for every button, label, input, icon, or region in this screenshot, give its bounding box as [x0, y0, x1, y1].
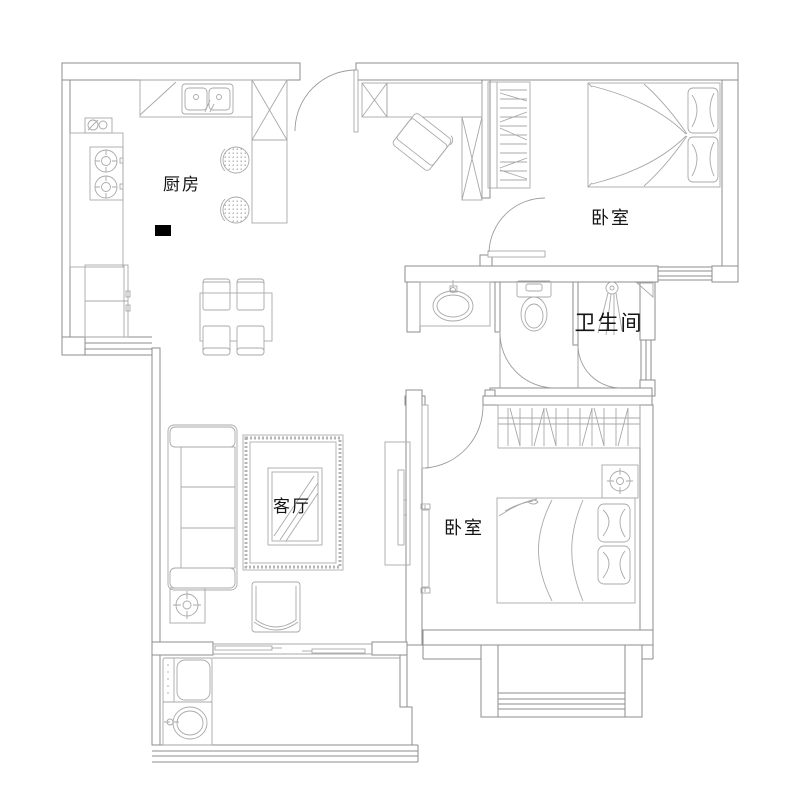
- living-room: [168, 425, 410, 632]
- column-hatch-icon: [362, 83, 387, 117]
- floor-plan-svg: 厨房 卧室 卫生间 客厅 卧室: [0, 0, 800, 812]
- armchair-icon: [252, 582, 300, 632]
- bed-icon: [497, 498, 635, 603]
- bed-icon: [588, 83, 720, 187]
- washing-machine-icon: [163, 658, 212, 702]
- nightstand-lamp-icon: [602, 465, 638, 498]
- bedroom-bottom: [421, 405, 640, 603]
- fridge-icon: [85, 265, 130, 337]
- column-hatch-icon: [252, 80, 287, 140]
- peninsula-counter: [252, 140, 287, 223]
- wardrobe-icon: [498, 405, 640, 448]
- kitchen-window: [85, 337, 152, 355]
- bedroom-top-window: [658, 267, 712, 280]
- dining-area: [200, 279, 272, 355]
- foyer: [362, 83, 482, 200]
- stove-icon: [70, 133, 123, 267]
- living-room-label: 客厅: [273, 497, 311, 516]
- bedroom-bottom-door: [422, 405, 483, 468]
- walls: [62, 63, 738, 745]
- dining-chair-icon: [203, 279, 230, 310]
- bedroom-top-door: [488, 198, 545, 257]
- entry-stool-icon: [392, 110, 456, 173]
- bedroom-bottom-label: 卧室: [444, 518, 484, 538]
- column-hatch-icon: [462, 117, 482, 200]
- balcony-window: [152, 745, 418, 762]
- dining-chair-icon: [237, 326, 264, 355]
- bay-window: [498, 693, 625, 709]
- corner-cabinet-icon: [140, 82, 176, 115]
- bathroom-window: [641, 340, 651, 380]
- shower-door: [578, 345, 620, 388]
- sliding-door-icon: [213, 644, 372, 654]
- floor-plan-image: 厨房 卧室 卫生间 客厅 卧室: [0, 0, 800, 812]
- bedroom-top-label: 卧室: [591, 208, 631, 228]
- wardrobe-icon: [488, 82, 530, 188]
- legend-marker: [155, 225, 171, 236]
- dining-chair-icon: [203, 326, 230, 355]
- bathroom-door: [500, 333, 553, 388]
- entry-cabinet: [387, 83, 482, 117]
- bathroom-label: 卫生间: [575, 312, 644, 335]
- toilet-icon: [517, 281, 551, 331]
- sofa-icon: [168, 425, 237, 590]
- sink-icon: [182, 84, 233, 114]
- bar-stool-icon: [221, 147, 249, 223]
- dining-chair-icon: [237, 279, 264, 310]
- mop-sink-icon: [163, 702, 212, 745]
- wall-tv-icon: [421, 504, 430, 593]
- gas-meter-icon: [85, 118, 112, 133]
- windows: [85, 267, 712, 762]
- balcony: [163, 644, 400, 745]
- kitchen-label: 厨房: [163, 175, 201, 194]
- entry-door: [295, 70, 358, 132]
- side-table-lamp-icon: [170, 588, 205, 623]
- bedroom-top: [488, 82, 720, 188]
- washbasin-icon: [420, 280, 490, 326]
